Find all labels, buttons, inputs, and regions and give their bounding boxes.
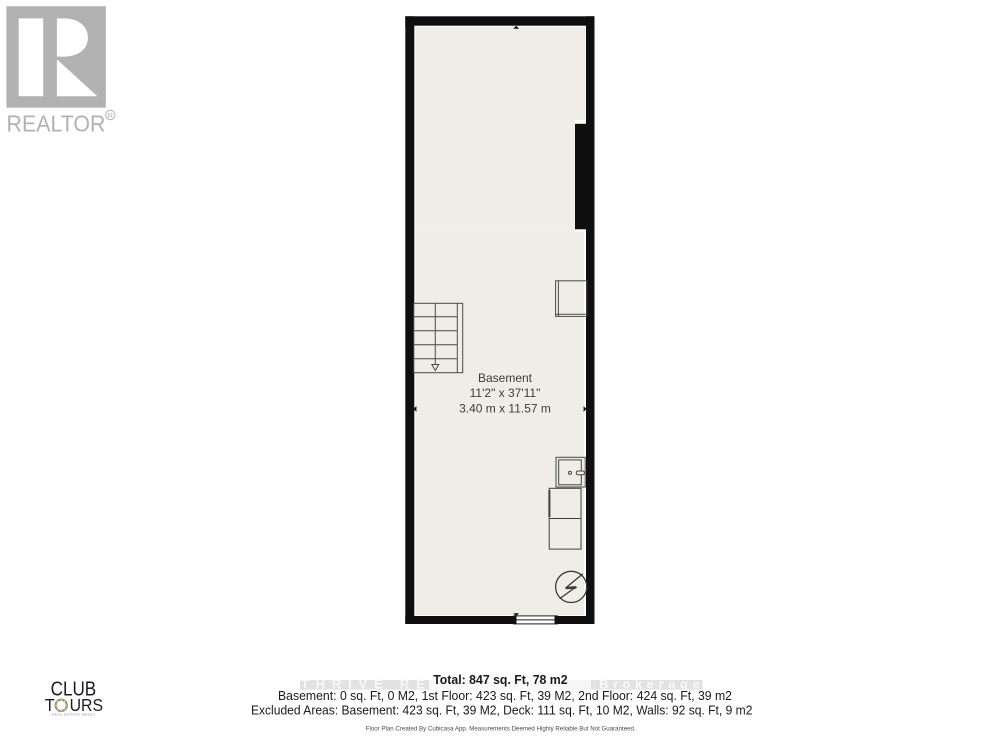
svg-text:11'2" x 37'11": 11'2" x 37'11" xyxy=(470,386,541,400)
svg-text:REAL ESTATE MEDIA: REAL ESTATE MEDIA xyxy=(52,712,96,717)
svg-text:Basement: 0 sq. Ft, 0 M2, 1st: Basement: 0 sq. Ft, 0 M2, 1st Floor: 423… xyxy=(278,688,732,703)
svg-text:Excluded Areas: Basement: 423: Excluded Areas: Basement: 423 sq. Ft, 39… xyxy=(251,702,753,717)
svg-text:Total: 847 sq. Ft, 78 m2: Total: 847 sq. Ft, 78 m2 xyxy=(433,672,567,687)
svg-text:Floor Plan Created By Cubicasa: Floor Plan Created By Cubicasa App. Meas… xyxy=(366,725,636,732)
svg-text:3.40 m x 11.57 m: 3.40 m x 11.57 m xyxy=(459,401,551,415)
svg-text:REALTOR: REALTOR xyxy=(7,111,106,137)
svg-text:R: R xyxy=(108,111,114,120)
svg-text:Basement: Basement xyxy=(478,371,533,385)
